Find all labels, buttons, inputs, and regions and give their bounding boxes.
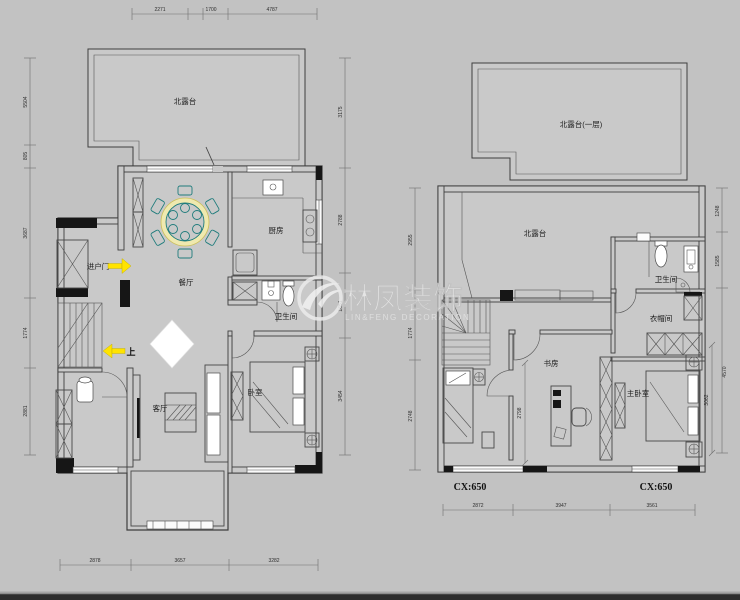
svg-text:3282: 3282 (268, 558, 279, 564)
floor2-body (438, 186, 705, 472)
window-label-right: CX:650 (640, 482, 673, 493)
svg-text:2798: 2798 (517, 407, 523, 418)
room-label-bedroom: 卧室 (248, 387, 263, 397)
brand-subtitle: LIN&FENG DECORATION (345, 313, 470, 322)
room-label-kitchen: 厨房 (269, 225, 284, 235)
window-label-left: CX:650 (454, 482, 487, 493)
svg-text:1585: 1585 (715, 255, 721, 266)
svg-text:4570: 4570 (722, 366, 728, 377)
room-label-cloakroom: 衣帽间 (650, 313, 673, 323)
svg-text:1774: 1774 (408, 327, 414, 338)
svg-text:1700: 1700 (205, 7, 216, 13)
up-label: 上 (126, 346, 135, 357)
svg-text:2271: 2271 (154, 7, 165, 13)
basin-icon (684, 246, 698, 272)
svg-text:2881: 2881 (23, 405, 29, 416)
room-label-bathroom-f2: 卫生间 (655, 274, 678, 284)
brand-name: 林凤装饰 (343, 283, 463, 316)
svg-text:3175: 3175 (338, 106, 344, 117)
svg-text:2748: 2748 (408, 410, 414, 421)
toilet-icon (283, 286, 294, 306)
svg-text:5504: 5504 (23, 96, 29, 107)
entry-label: 进户门 (87, 261, 110, 271)
svg-text:3062: 3062 (704, 394, 710, 405)
svg-text:3687: 3687 (23, 227, 29, 238)
svg-text:3561: 3561 (646, 503, 657, 509)
svg-text:1248: 1248 (715, 205, 721, 216)
room-label-terrace-f2: 北露台 (524, 228, 547, 238)
room-label-study: 书房 (544, 358, 559, 368)
room-label-master-bedroom: 主卧室 (627, 388, 650, 398)
svg-text:805: 805 (23, 152, 29, 161)
room-label-terrace-f1: 北露台 (174, 96, 197, 106)
svg-text:2788: 2788 (338, 214, 344, 225)
svg-text:4787: 4787 (266, 7, 277, 13)
svg-text:3947: 3947 (555, 503, 566, 509)
svg-text:2878: 2878 (89, 558, 100, 564)
floor-plan-drawing: 北露台 (0, 0, 740, 600)
room-label-dining: 餐厅 (179, 278, 194, 287)
svg-text:3657: 3657 (174, 558, 185, 564)
room-label-bathroom-f1: 卫生间 (275, 311, 298, 321)
sink-icon (263, 180, 283, 195)
room-label-living: 客厅 (153, 403, 168, 413)
svg-text:2872: 2872 (472, 503, 483, 509)
chair-icon (77, 377, 93, 402)
svg-text:2955: 2955 (408, 234, 414, 245)
svg-text:1774: 1774 (23, 327, 29, 338)
room-label-roof-terrace: 北露台(一层) (560, 119, 603, 129)
bottom-bar (0, 592, 740, 600)
toilet-tank-icon (283, 281, 294, 286)
toilet-icon (655, 241, 667, 267)
floor-plan-page: 北露台 (0, 0, 740, 600)
svg-text:3454: 3454 (338, 390, 344, 401)
